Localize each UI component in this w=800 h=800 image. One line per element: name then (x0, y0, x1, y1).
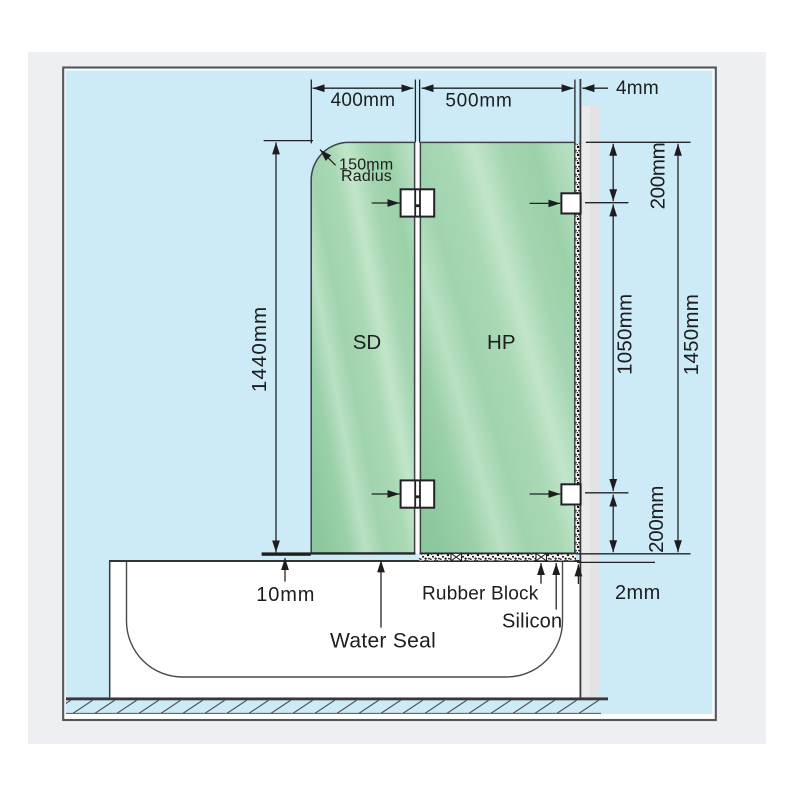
svg-text:Rubber Block: Rubber Block (422, 583, 539, 604)
svg-text:500mm: 500mm (445, 91, 512, 112)
svg-text:1440mm: 1440mm (248, 306, 271, 392)
svg-text:4mm: 4mm (616, 78, 659, 99)
svg-text:HP: HP (487, 331, 515, 354)
svg-text:1050mm: 1050mm (614, 294, 637, 375)
svg-text:SD: SD (353, 331, 381, 354)
svg-text:1450mm: 1450mm (680, 294, 703, 375)
svg-text:200mm: 200mm (647, 143, 670, 210)
svg-text:Radius: Radius (341, 168, 392, 185)
svg-text:400mm: 400mm (331, 90, 396, 111)
svg-text:Silicon: Silicon (502, 610, 562, 632)
svg-text:Water Seal: Water Seal (330, 630, 436, 653)
svg-text:2mm: 2mm (615, 582, 661, 604)
svg-text:10mm: 10mm (256, 584, 315, 606)
svg-text:200mm: 200mm (645, 486, 668, 553)
